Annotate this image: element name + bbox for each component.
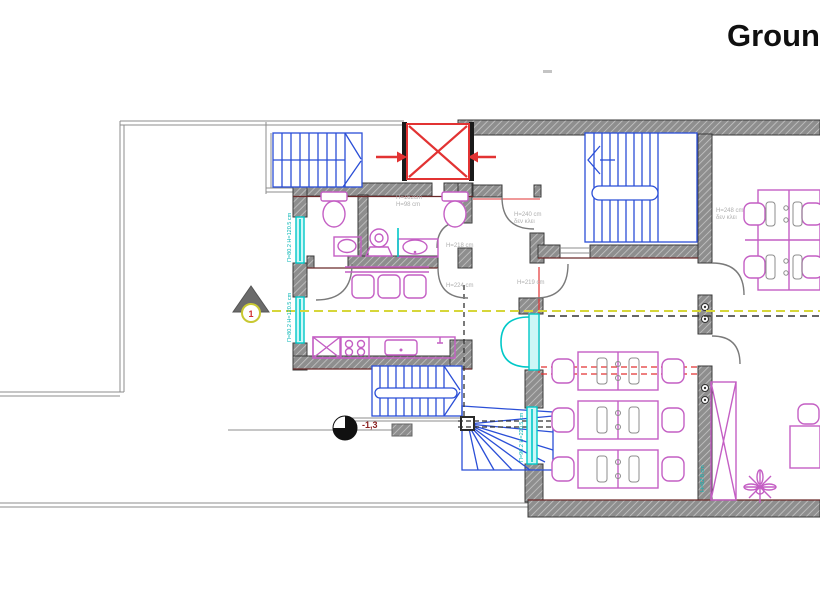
staircase-top-left (273, 133, 362, 187)
door-note-label: δεν κλει (514, 219, 535, 225)
workstation-row (552, 450, 684, 488)
floor-plan-drawing: 1 -1,3 Π=162cm H=98 cm H=218 cm H=224 cm… (0, 0, 820, 600)
kitchen-counter (313, 337, 455, 358)
door-height-label: H=218 cm (446, 243, 474, 249)
wc-width-label: Π=162cm (396, 195, 422, 201)
toilet-icon (442, 192, 468, 227)
floor-plan-canvas: 1 -1,3 Π=162cm H=98 cm H=218 cm H=224 cm… (0, 0, 820, 600)
window-label: Π=90.2 H=220.5 cm (519, 412, 525, 462)
staircase-top-right (585, 133, 697, 242)
vanity-sink-icon (398, 239, 438, 257)
sink-icon (334, 237, 361, 256)
french-door (529, 314, 539, 370)
level-marker: -1,3 (228, 416, 412, 440)
door-height-label: H=224 cm (446, 283, 474, 289)
workstation-row (552, 401, 684, 439)
wardrobe-icon (711, 382, 736, 500)
wall-socket-circles (702, 304, 709, 404)
section-number: 1 (248, 309, 253, 319)
dining-set (345, 267, 429, 298)
dashed-guide-lines (458, 285, 820, 427)
office-door-upper-arc (712, 263, 744, 295)
bathroom-a-door-arc (316, 264, 352, 300)
workstation-rows (552, 352, 684, 488)
door-height-label: H=219 cm (517, 280, 545, 286)
toilet-icon (321, 192, 347, 227)
newel-post (461, 417, 474, 430)
dimension-tick (543, 70, 552, 73)
pedestal-sink-icon (366, 229, 392, 256)
door-height-label: H=240 cm (514, 212, 542, 218)
door-height-label: H=248 cm (716, 208, 744, 214)
window-label: H=82.8 cm (700, 465, 706, 492)
workstation-cluster-top-right (744, 190, 820, 290)
wc-height-label: H=98 cm (396, 202, 420, 208)
stove-icon (341, 337, 369, 358)
cabinet-icon (313, 337, 340, 358)
plant-icon (744, 470, 776, 503)
window-label: Π=80.2 H=120.5 cm (287, 212, 293, 262)
staircase-winder-fan (461, 406, 553, 470)
workstation-row (552, 352, 684, 390)
kitchen-sink-icon (385, 340, 417, 355)
office-door-lower-arc (712, 336, 740, 364)
door-note-label: δεν κλει (716, 215, 737, 221)
drawing-title: Ground (727, 18, 820, 54)
step-block (392, 424, 412, 436)
manager-desk (790, 404, 820, 468)
level-value: -1,3 (362, 420, 378, 430)
window-label: Π=80.2 H=120.5 cm (287, 292, 293, 342)
staircase-exterior-flight (340, 366, 468, 421)
